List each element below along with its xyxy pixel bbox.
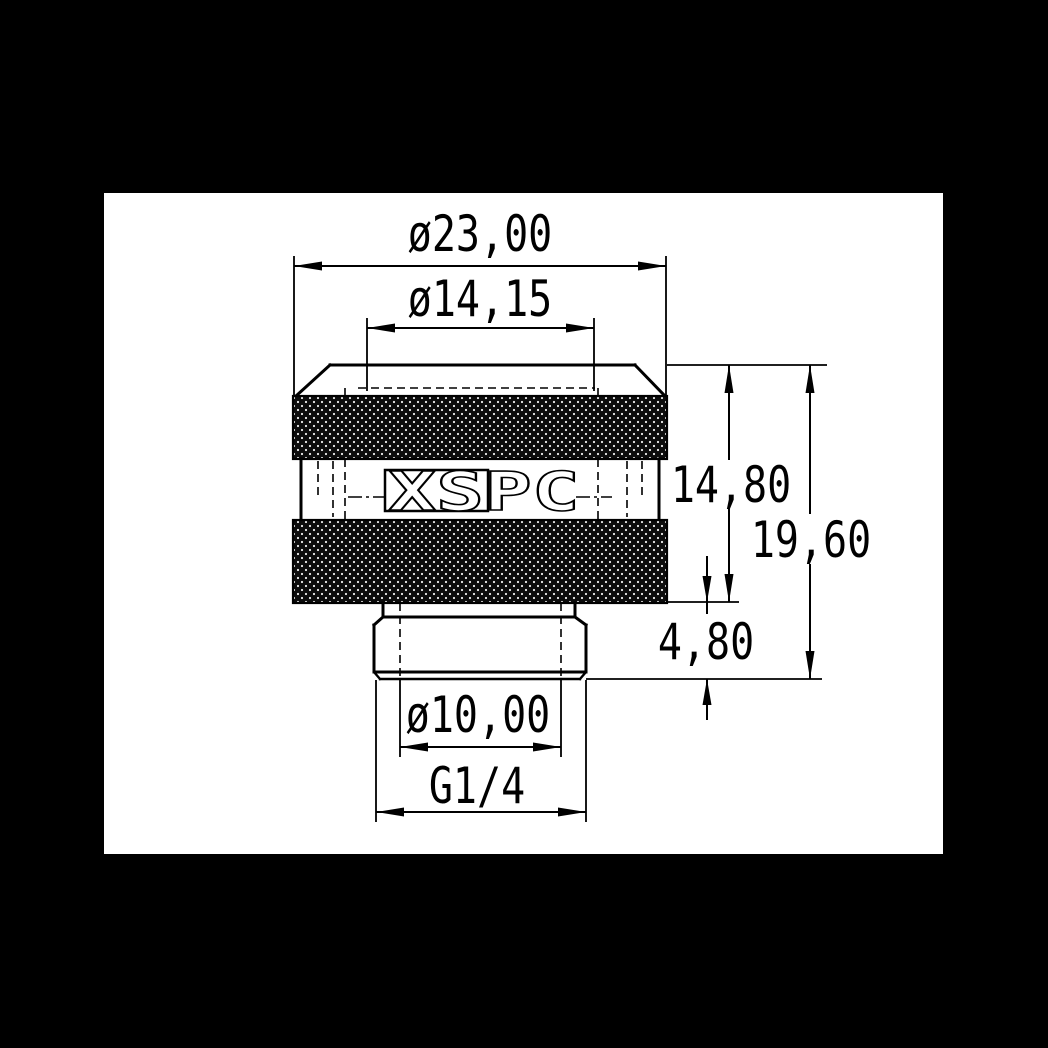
dim-label-outer-diameter: ø23,00 xyxy=(408,205,552,264)
dim-label-thread-size: G1/4 xyxy=(429,757,525,816)
xspc-logo: XSPC xyxy=(385,461,580,523)
dim-label-overall-height: 19,60 xyxy=(751,511,871,570)
screenshot-root: XSPC ø23,00 ø xyxy=(0,0,1048,1048)
lower-knurl-band xyxy=(293,520,667,603)
upper-knurl-band xyxy=(293,396,667,459)
dim-label-bore-diameter: ø10,00 xyxy=(406,686,550,745)
dimension-drawing: XSPC ø23,00 ø xyxy=(0,0,1048,1048)
dim-label-thread-section-height: 4,80 xyxy=(658,613,754,672)
dim-label-upper-body-height: 14,80 xyxy=(671,456,791,515)
dim-label-opening-diameter: ø14,15 xyxy=(408,270,552,329)
logo-text: XSPC xyxy=(388,461,579,523)
